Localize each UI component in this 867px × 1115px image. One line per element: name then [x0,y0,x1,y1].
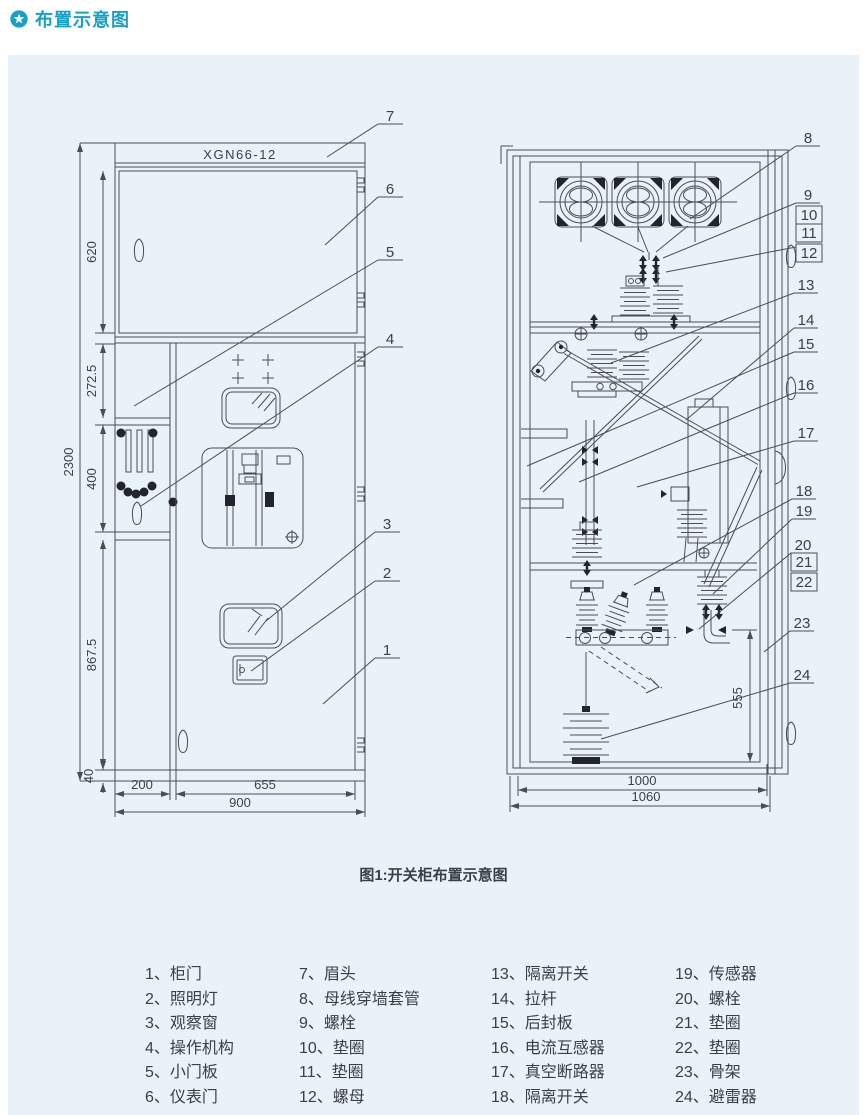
legend-item: 12、螺母 [299,1086,420,1111]
callout-7: 7 [386,108,394,125]
callout-5: 5 [386,244,394,261]
front-view-drawing: 2300 620 272.5 400 867.5 40 200 655 9 [61,108,403,817]
legend-item: 5、小门板 [145,1061,234,1086]
dim-1060: 1060 [632,789,661,804]
model-label: XGN66-12 [203,147,276,162]
dim-555: 555 [730,687,745,709]
technical-drawing: 2300 620 272.5 400 867.5 40 200 655 9 [0,0,867,1115]
callout-22: 22 [796,574,813,591]
callout-1: 1 [383,642,391,659]
side-view-drawing: 555 1000 1060 8 9 10 11 12 [501,130,822,812]
legend-item: 11、垫圈 [299,1061,420,1086]
callout-3: 3 [383,516,391,533]
dim-200: 200 [131,777,153,792]
legend-item: 14、拉杆 [491,988,605,1013]
callout-23: 23 [794,615,811,632]
legend-item: 2、照明灯 [145,988,234,1013]
legend-item: 19、传感器 [675,963,757,988]
legend-column-3: 13、隔离开关 14、拉杆 15、后封板 16、电流互感器 17、真空断路器 1… [491,963,605,1110]
legend-item: 22、垫圈 [675,1037,757,1062]
callout-2: 2 [383,565,391,582]
legend-item: 24、避雷器 [675,1086,757,1111]
legend-item: 4、操作机构 [145,1037,234,1062]
legend-item: 9、螺栓 [299,1012,420,1037]
legend-item: 23、骨架 [675,1061,757,1086]
callout-13: 13 [798,277,815,294]
dim-total-height: 2300 [61,448,76,477]
callout-21: 21 [796,554,813,571]
legend-item: 15、后封板 [491,1012,605,1037]
legend-item: 8、母线穿墙套管 [299,988,420,1013]
front-dimensions: 2300 620 272.5 400 867.5 40 200 655 9 [61,143,365,817]
legend-item: 17、真空断路器 [491,1061,605,1086]
callout-14: 14 [798,312,815,329]
dim-620: 620 [84,241,99,263]
callout-15: 15 [798,336,815,353]
legend-item: 7、眉头 [299,963,420,988]
legend-column-1: 1、柜门 2、照明灯 3、观察窗 4、操作机构 5、小门板 6、仪表门 [145,963,234,1110]
legend-item: 21、垫圈 [675,1012,757,1037]
legend-item: 3、观察窗 [145,1012,234,1037]
dim-272-5: 272.5 [84,365,99,398]
dim-867-5: 867.5 [84,639,99,672]
legend-column-4: 19、传感器 20、螺栓 21、垫圈 22、垫圈 23、骨架 24、避雷器 [675,963,757,1110]
side-dimensions: 555 1000 1060 [510,630,770,812]
legend-item: 6、仪表门 [145,1086,234,1111]
dim-40: 40 [81,769,96,783]
dim-900: 900 [229,795,251,810]
legend-item: 16、电流互感器 [491,1037,605,1062]
page: 布置示意图 [0,0,867,1115]
callout-9: 9 [804,187,812,204]
callout-10: 10 [801,207,818,224]
callout-6: 6 [386,181,394,198]
legend-item: 1、柜门 [145,963,234,988]
figure-caption: 图1:开关柜布置示意图 [0,864,867,885]
legend-item: 18、隔离开关 [491,1086,605,1111]
legend-column-2: 7、眉头 8、母线穿墙套管 9、螺栓 10、垫圈 11、垫圈 12、螺母 [299,963,420,1110]
callout-8: 8 [804,130,812,147]
callout-18: 18 [796,483,813,500]
callout-24: 24 [794,667,811,684]
dim-655: 655 [254,777,276,792]
dim-1000: 1000 [628,773,657,788]
callout-16: 16 [798,377,815,394]
callout-20: 20 [795,537,812,554]
dim-400: 400 [84,468,99,490]
callout-11: 11 [801,225,817,242]
legend-item: 20、螺栓 [675,988,757,1013]
callout-17: 17 [798,425,815,442]
callout-4: 4 [386,331,394,348]
legend-item: 10、垫圈 [299,1037,420,1062]
legend-item: 13、隔离开关 [491,963,605,988]
callout-12: 12 [801,245,818,262]
callout-19: 19 [796,503,813,520]
